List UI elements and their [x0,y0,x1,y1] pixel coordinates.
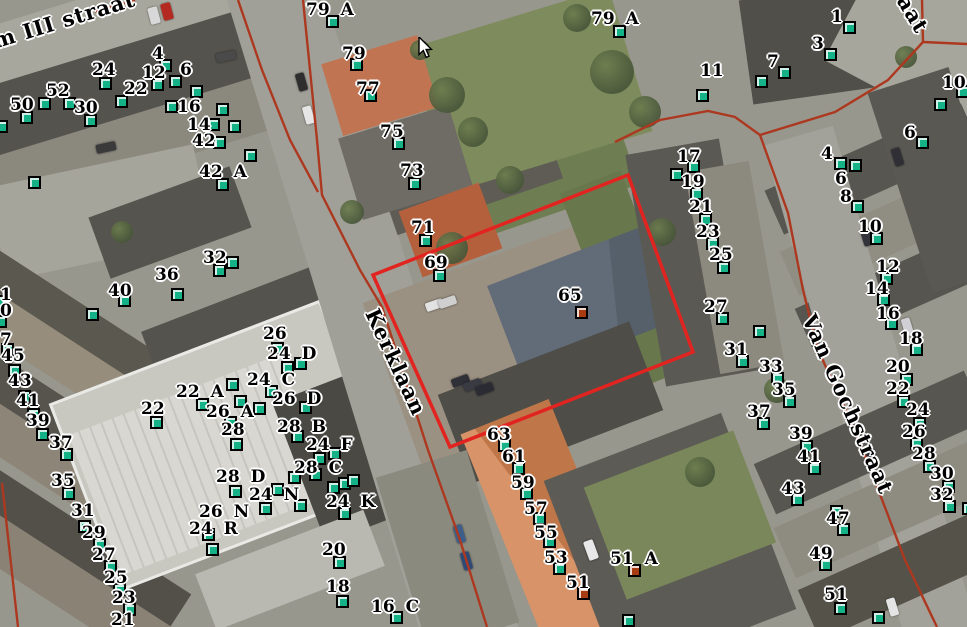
house-number-label: 30 [74,100,98,117]
house-number-label: 71 [411,220,435,237]
house-number-label: 8 [840,189,852,206]
house-number-marker[interactable] [347,474,360,487]
house-number-label: 24 K [326,494,375,511]
house-number-label: 26 D [272,391,321,408]
road-centerline [2,483,18,627]
house-number-marker[interactable] [934,98,947,111]
house-number-label: 42 [192,133,216,150]
house-number-marker[interactable] [851,200,864,213]
house-number-label: 6 [180,62,192,79]
house-number-label: 12 [876,259,900,276]
road-centerline [615,111,760,142]
house-number-label: 37 [747,404,771,421]
house-number-label: 32 [203,250,227,267]
road-centerline [760,42,923,135]
house-number-label: 18 [899,331,923,348]
house-number-label: 41 [797,449,821,466]
house-number-label: 24 R [189,521,238,538]
house-number-label: 3 [812,36,824,53]
house-number-label: 27 [704,299,728,316]
mouse-cursor [418,37,434,63]
house-number-label: 75 [380,124,404,141]
house-number-marker[interactable] [696,89,709,102]
house-number-label: 32 [930,487,954,504]
house-number-marker[interactable] [253,402,266,415]
house-number-label: 79 A [306,2,354,19]
house-number-label: 21 [111,612,135,627]
house-number-label: 31 [71,503,95,520]
house-number-marker[interactable] [28,176,41,189]
house-number-label: 20 [886,359,910,376]
house-number-label: 53 [544,550,568,567]
house-number-label: 16 [177,99,201,116]
house-number-label: 45 [1,348,25,365]
house-number-label: 7 [767,54,779,71]
house-number-label: 26 A [206,404,254,421]
house-number-label: 22 A [176,384,224,401]
house-number-label: 25 [709,247,733,264]
house-number-label: 28 [912,446,936,463]
house-number-marker[interactable] [228,120,241,133]
house-number-marker[interactable] [962,502,967,515]
house-number-label: 16 [876,306,900,323]
house-number-label: 69 [424,255,448,272]
house-number-label: 23 [112,590,136,607]
house-number-marker[interactable] [916,136,929,149]
house-number-marker[interactable] [849,159,862,172]
house-number-marker[interactable] [872,611,885,624]
house-number-label: 27 [92,547,116,564]
house-number-label: 21 [689,199,713,216]
house-number-label: 24 D [267,346,316,363]
house-number-label: 24 [92,62,116,79]
house-number-marker[interactable] [755,75,768,88]
house-number-label: 6 [904,125,916,142]
house-number-label: 10 [942,75,966,92]
house-number-marker[interactable] [86,308,99,321]
house-number-label: 35 [772,382,796,399]
house-number-label: 20 [322,542,346,559]
house-number-label: 23 [696,224,720,241]
house-number-marker[interactable] [216,103,229,116]
house-number-label: 6 [835,171,847,188]
house-number-label: 18 [326,579,350,596]
house-number-label: 17 [677,149,701,166]
house-number-label: 63 [487,427,511,444]
house-number-label: 42 A [199,164,247,181]
house-number-label: 16 C [371,599,419,616]
house-number-marker[interactable] [824,48,837,61]
house-number-label: 35 [51,473,75,490]
house-number-marker[interactable] [226,256,239,269]
house-number-label: 14 [865,281,889,298]
map-viewport[interactable]: 5052243022412616144242 A4036321074543413… [0,0,967,627]
house-number-label: 79 A [591,11,639,28]
house-number-label: 24 [906,402,930,419]
house-number-label: 73 [400,163,424,180]
house-number-label: 49 [809,546,833,563]
house-number-marker[interactable] [206,543,219,556]
house-number-marker[interactable] [843,21,856,34]
house-number-label: 22 [124,81,148,98]
house-number-label: 28 B [277,419,326,436]
house-number-label: 55 [534,525,558,542]
road-centerline [923,42,967,44]
house-number-label: 22 [141,401,165,418]
house-number-label: 11 [700,63,724,80]
house-number-label: 51 [824,587,848,604]
house-number-label: 36 [155,267,179,284]
house-number-label: 25 [104,570,128,587]
house-number-label: 26 [263,326,287,343]
house-number-label: 4 [821,146,833,163]
house-number-label: 77 [356,81,380,98]
house-number-label: 12 [142,65,166,82]
house-number-label: 37 [49,435,73,452]
house-number-label: 24 C [247,372,295,389]
house-number-label: 40 [108,283,132,300]
house-number-label: 39 [789,426,813,443]
house-number-label: 24 N [249,487,299,504]
road-centerline [303,0,487,627]
house-number-label: 24 F [306,437,353,454]
house-number-label: 10 [858,219,882,236]
house-number-label: 41 [16,393,40,410]
house-number-label: 59 [511,475,535,492]
house-number-label: 50 [10,97,34,114]
house-number-label: 26 [902,424,926,441]
house-number-marker[interactable] [171,288,184,301]
house-number-label: 57 [524,501,548,518]
house-number-label: 28 [221,422,245,439]
house-number-label: 19 [681,174,705,191]
house-number-label: 51 A [610,551,658,568]
house-number-label: 28 C [294,460,342,477]
house-number-marker-selected[interactable] [575,306,588,319]
house-number-label: 22 [886,381,910,398]
house-number-label: 28 D [216,469,265,486]
house-number-label: 65 [558,288,582,305]
house-number-label: 1 [831,9,843,26]
house-number-marker[interactable] [622,614,635,627]
house-number-label: 29 [82,525,106,542]
house-number-label: 43 [781,481,805,498]
house-number-marker[interactable] [778,66,791,79]
house-number-label: 79 [342,46,366,63]
house-number-label: 51 [566,575,590,592]
house-number-label: 47 [826,511,850,528]
house-number-label: 61 [502,449,526,466]
house-number-marker[interactable] [753,325,766,338]
house-number-label: 0 [0,303,12,320]
house-number-marker[interactable] [244,149,257,162]
house-number-label: 4 [152,46,164,63]
house-number-label: 33 [759,359,783,376]
house-number-label: 30 [930,466,954,483]
house-number-label: 31 [724,342,748,359]
house-number-marker[interactable] [0,120,8,133]
house-number-label: 39 [26,413,50,430]
house-number-label: 43 [8,373,32,390]
house-number-marker[interactable] [226,378,239,391]
house-number-label: 52 [46,83,70,100]
